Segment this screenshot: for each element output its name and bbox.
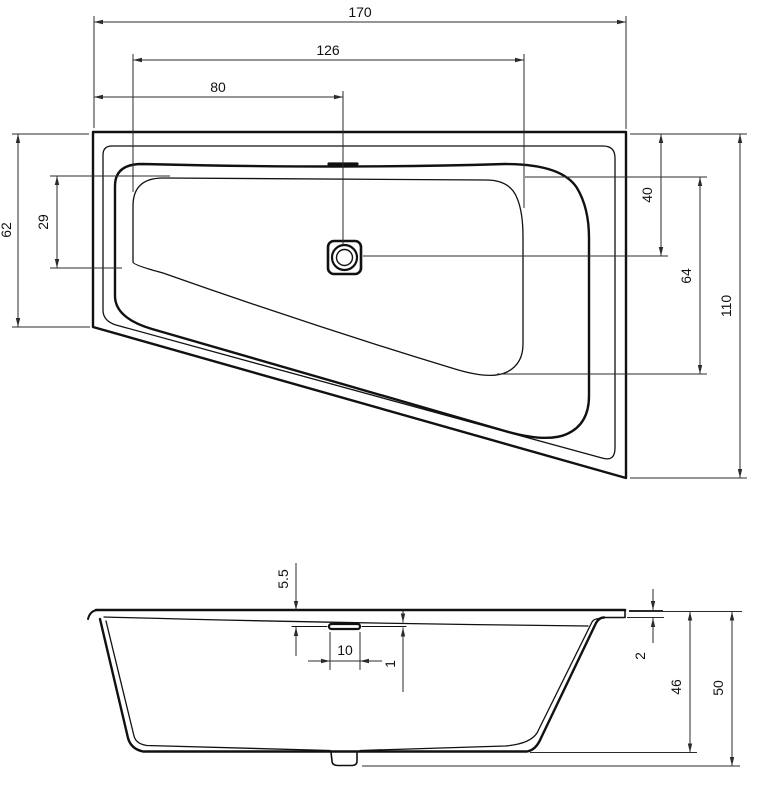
dim-label-10: 10	[337, 642, 353, 658]
drawing-page: 170 126 80 62 29 40 64 110	[0, 0, 760, 800]
dim-label-29: 29	[35, 214, 51, 230]
dim-label-5-5: 5.5	[275, 569, 291, 589]
dim-label-110: 110	[718, 295, 734, 318]
dim-label-170: 170	[348, 4, 372, 20]
dim-label-50: 50	[710, 680, 726, 696]
dim-label-126: 126	[316, 42, 340, 58]
dim-label-64: 64	[678, 268, 694, 284]
dim-label-46: 46	[668, 679, 684, 695]
dim-label-40: 40	[639, 187, 655, 203]
dim-label-62: 62	[0, 222, 14, 238]
bathtub-technical-drawing: 170 126 80 62 29 40 64 110	[0, 0, 760, 800]
dim-label-1: 1	[382, 660, 398, 668]
dim-label-80: 80	[210, 79, 226, 95]
dim-label-2: 2	[632, 652, 648, 660]
